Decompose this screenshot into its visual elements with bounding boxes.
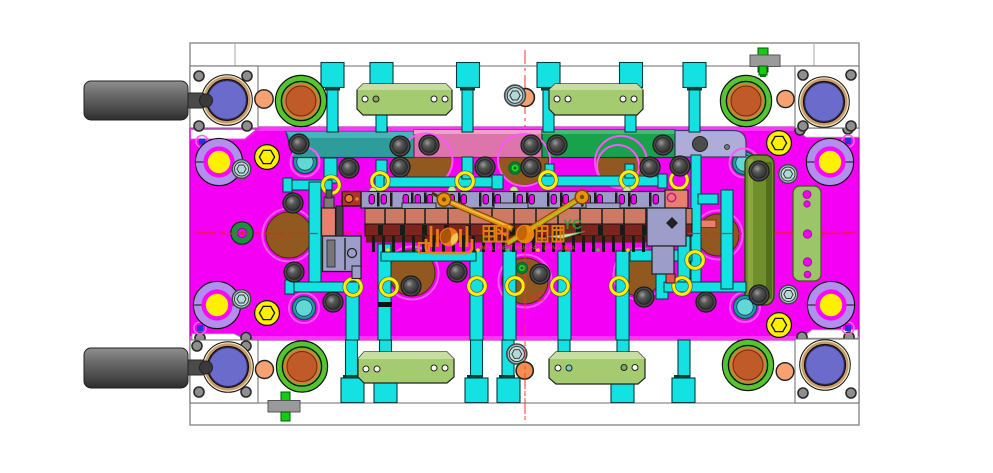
svg-text:INTELLIGENT MANUFACTURING DATA: INTELLIGENT MANUFACTURING DATA — [480, 246, 575, 252]
svg-text:YC: YC — [563, 217, 582, 232]
svg-text:×C: ×C — [528, 289, 545, 304]
